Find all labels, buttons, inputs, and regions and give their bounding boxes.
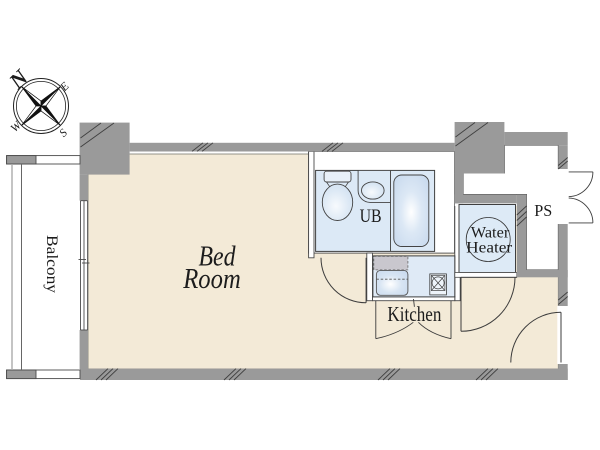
svg-text:Balcony: Balcony <box>43 235 60 293</box>
svg-text:UB: UB <box>360 207 382 227</box>
svg-text:Room: Room <box>182 264 240 295</box>
svg-text:Heater: Heater <box>466 239 512 256</box>
svg-text:PS: PS <box>534 201 552 220</box>
